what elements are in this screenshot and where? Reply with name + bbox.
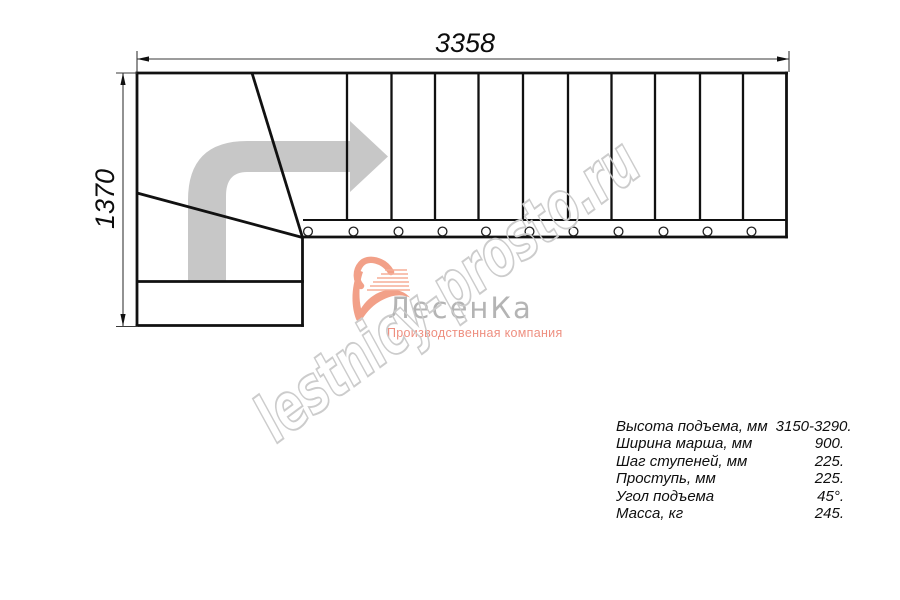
spec-value: 225.: [815, 470, 844, 487]
spec-label: Проступь, мм: [616, 470, 716, 487]
spec-row: Проступь, мм 225.: [616, 470, 844, 487]
specs-table: Высота подъема, мм 3150-3290. Ширина мар…: [616, 418, 844, 522]
height-dimension: 1370: [90, 73, 138, 327]
dimension-arrowhead: [137, 56, 149, 61]
spec-value: 225.: [815, 453, 844, 470]
height-dimension-label: 1370: [90, 169, 120, 229]
spec-value: 245.: [815, 505, 844, 522]
bolt-circle: [747, 227, 756, 236]
bolt-circle: [394, 227, 403, 236]
bolt-circle: [703, 227, 712, 236]
spec-row: Высота подъема, мм 3150-3290.: [616, 418, 844, 435]
spec-value: 900.: [815, 435, 844, 452]
bolt-circle: [349, 227, 358, 236]
spec-label: Масса, кг: [616, 505, 683, 522]
bolt-circle: [304, 227, 313, 236]
spec-label: Ширина марша, мм: [616, 435, 752, 452]
bolt-circle: [438, 227, 447, 236]
spec-value: 3150-3290.: [776, 418, 852, 435]
spec-label: Угол подъема: [616, 488, 714, 505]
spec-value: 45°.: [817, 488, 844, 505]
dimension-arrowhead: [120, 314, 125, 326]
dimension-arrowhead: [777, 56, 789, 61]
spec-label: Высота подъема, мм: [616, 418, 768, 435]
width-dimension: 3358: [137, 28, 789, 72]
spec-row: Шаг ступеней, мм 225.: [616, 453, 844, 470]
spec-row: Масса, кг 245.: [616, 505, 844, 522]
width-dimension-label: 3358: [435, 28, 495, 58]
spec-label: Шаг ступеней, мм: [616, 453, 747, 470]
spec-row: Угол подъема 45°.: [616, 488, 844, 505]
bolt-circle: [614, 227, 623, 236]
direction-arrow: [188, 121, 388, 282]
dimension-arrowhead: [120, 73, 125, 85]
spec-row: Ширина марша, мм 900.: [616, 435, 844, 452]
staircase-drawing-page: 3358 1370: [0, 0, 900, 600]
bolt-circle: [659, 227, 668, 236]
